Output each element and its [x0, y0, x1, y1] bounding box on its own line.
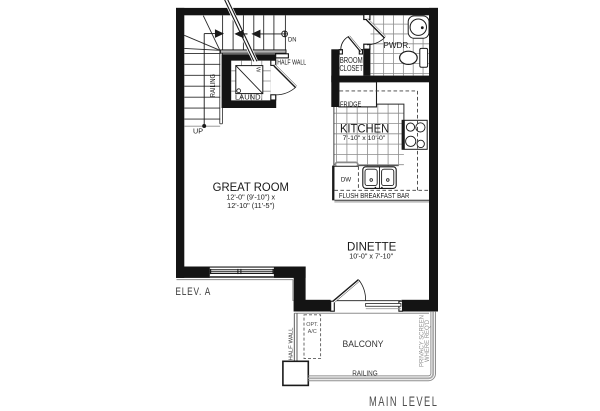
svg-text:A/C: A/C: [308, 329, 317, 335]
svg-text:HALF WALL: HALF WALL: [289, 327, 295, 361]
svg-text:DN: DN: [288, 37, 297, 44]
svg-text:CLOSET: CLOSET: [339, 63, 363, 73]
svg-text:OPT.: OPT.: [306, 322, 318, 328]
svg-text:RAILING: RAILING: [210, 74, 217, 97]
svg-text:DINETTE: DINETTE: [347, 240, 396, 254]
svg-text:WHERE REQ'D: WHERE REQ'D: [425, 319, 431, 362]
svg-text:DW: DW: [341, 176, 351, 183]
svg-text:UP: UP: [193, 127, 203, 136]
svg-text:KITCHEN: KITCHEN: [340, 122, 389, 136]
svg-text:10'-0" x 7'-10": 10'-0" x 7'-10": [349, 253, 393, 260]
svg-text:PWDR.: PWDR.: [384, 40, 411, 50]
svg-text:BALCONY: BALCONY: [343, 339, 384, 349]
svg-text:LAUND.: LAUND.: [235, 93, 263, 102]
svg-text:12'-0" (9'-10") x: 12'-0" (9'-10") x: [226, 195, 275, 202]
svg-text:ELEV. A: ELEV. A: [175, 286, 211, 298]
svg-text:12'-10" (11'-5"): 12'-10" (11'-5"): [227, 203, 274, 210]
svg-text:RAILING: RAILING: [352, 370, 378, 377]
svg-text:FLUSH BREAKFAST BAR: FLUSH BREAKFAST BAR: [339, 193, 410, 200]
svg-text:FRIDGE: FRIDGE: [340, 102, 362, 109]
svg-text:7'-10" x 10'-0": 7'-10" x 10'-0": [343, 135, 386, 142]
svg-text:GREAT ROOM: GREAT ROOM: [213, 180, 289, 194]
svg-text:W: W: [254, 67, 260, 73]
svg-text:HALF WALL: HALF WALL: [277, 59, 306, 67]
svg-text:MAIN LEVEL: MAIN LEVEL: [369, 393, 438, 410]
